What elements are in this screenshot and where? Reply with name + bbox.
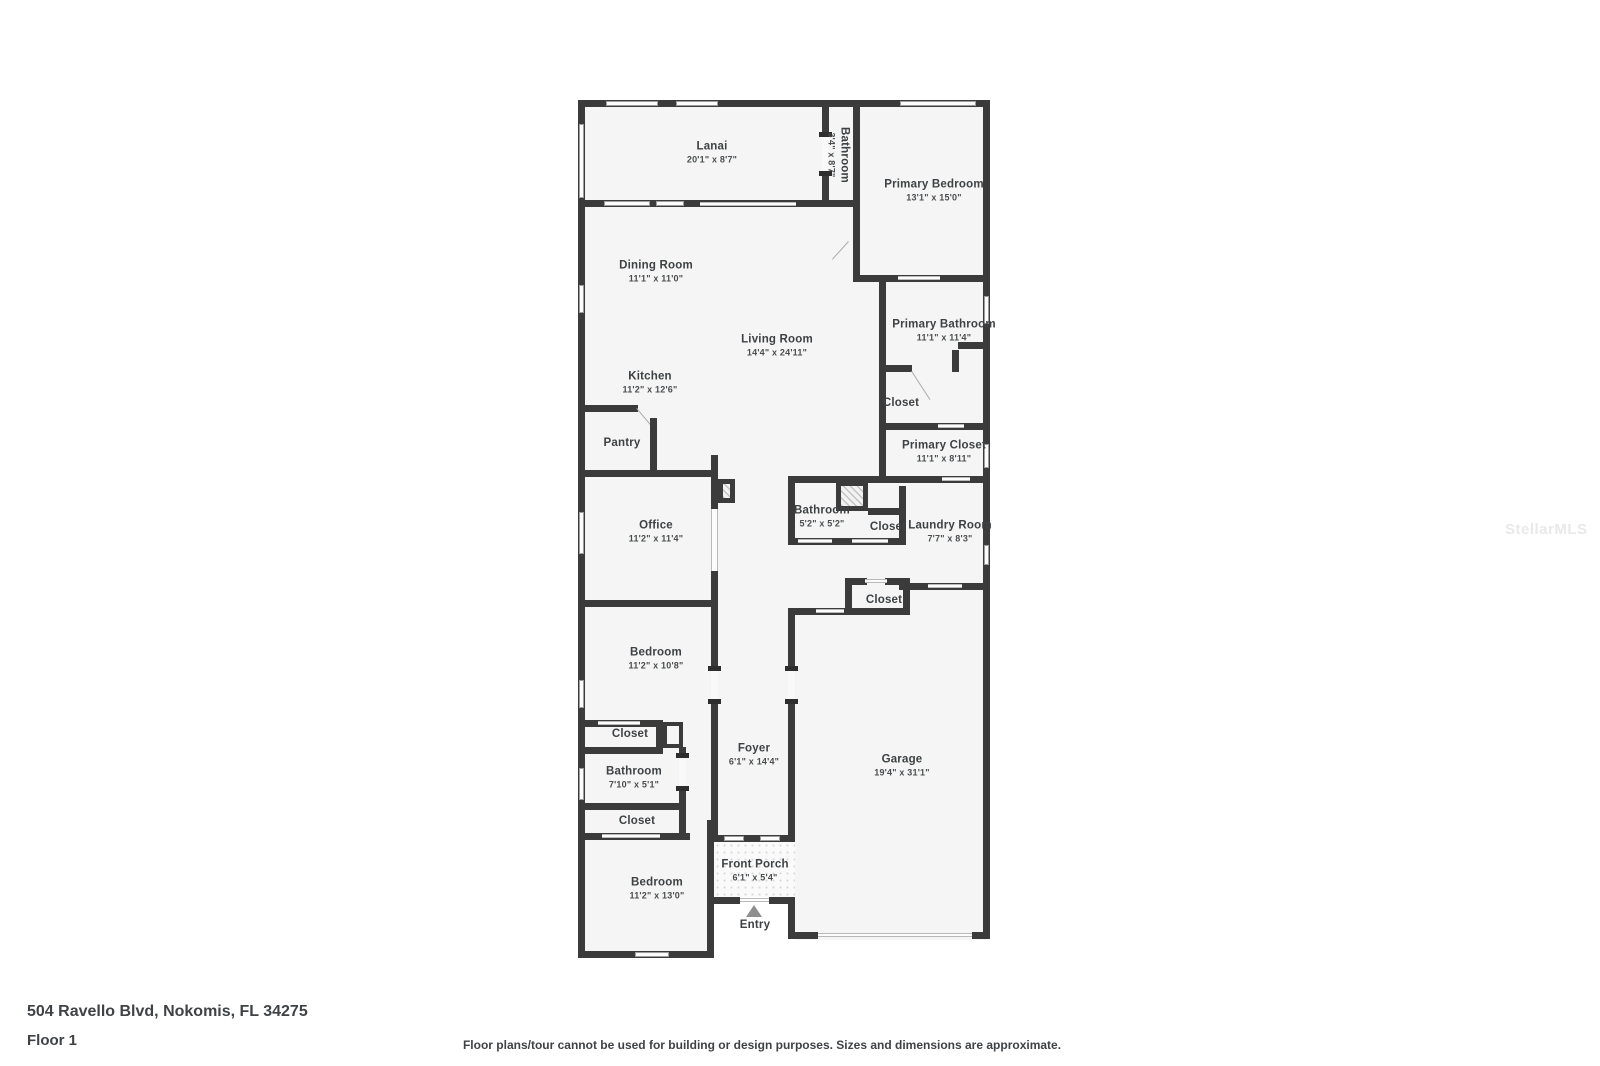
window [604,201,650,206]
room-dims: 7'7" x 8'3" [908,534,992,545]
door-opening [679,758,686,786]
wall [578,803,686,810]
room-label-kitchen: Kitchen11'2" x 12'6" [623,370,678,397]
door-frame [676,786,689,791]
room-dims: 11'1" x 11'4" [892,333,996,344]
door-frame [785,666,798,671]
wall [886,365,912,372]
room-name: Primary Closet [902,439,986,453]
room-label-garage: Garage19'4" x 31'1" [874,753,929,780]
door-opening [788,671,795,699]
wall [972,932,990,939]
room-label-primary-closet: Primary Closet11'1" x 8'11" [902,439,986,466]
door-frame [708,699,721,704]
room-label-lanai: Lanai20'1" x 8'7" [687,140,737,167]
door-opening [898,276,940,280]
window [579,680,584,708]
door-frame [785,699,798,704]
room-label-hall-bathroom: Bathroom5'2" x 5'2" [794,504,850,531]
porch-opening [740,898,769,902]
room-name: Foyer [729,742,779,756]
room-label-foyer: Foyer6'1" x 14'4" [729,742,779,769]
door-opening [928,584,962,588]
room-name: Office [629,519,683,533]
window [606,101,658,106]
wall [578,405,638,412]
door-opening [816,609,844,613]
room-dims: 7'10" x 5'1" [606,780,662,791]
room-name: Laundry Room [908,519,992,533]
window [984,545,989,565]
room-label-bathroom-top: Bathroom3'4" x 8'7" [825,127,852,183]
room-dims: 11'1" x 8'11" [902,454,986,465]
wall [707,820,714,958]
room-label-primary-bathroom: Primary Bathroom11'1" x 11'4" [892,318,996,345]
room-label-laundry-room: Laundry Room7'7" x 8'3" [908,519,992,546]
room-dims: 11'2" x 10'8" [629,661,684,672]
room-label-living-room: Living Room14'4" x 24'11" [741,333,813,360]
room-label-pantry: Pantry [604,436,641,450]
room-label-closet-primary-bath: Closet [883,396,919,410]
wall [845,578,867,585]
door-opening [711,671,718,699]
window [900,101,976,106]
wall [860,476,990,483]
wall [879,423,990,430]
room-name: Primary Bathroom [892,318,996,332]
garage-door [818,933,972,937]
wall [714,897,740,904]
room-dims: 20'1" x 8'7" [687,155,737,166]
room-name: Front Porch [721,858,788,872]
wall [578,470,718,477]
room-label-bedroom-mid: Bedroom11'2" x 10'8" [629,646,684,673]
window [579,512,584,554]
room-name: Garage [874,753,929,767]
window [676,101,718,106]
room-name: Lanai [687,140,737,154]
room-label-primary-bedroom: Primary Bedroom13'1" x 15'0" [884,178,984,205]
room-label-closet-bed-lower: Closet [619,814,655,828]
room-label-front-porch: Front Porch6'1" x 5'4" [721,858,788,885]
window [579,124,584,198]
footer-address: 504 Ravello Blvd, Nokomis, FL 34275 [27,1003,308,1021]
room-name: Closet [866,593,902,607]
wall [663,722,683,748]
door-opening [602,834,660,838]
room-name: Dining Room [619,259,693,273]
room-name: Pantry [604,436,641,450]
room-name: Living Room [741,333,813,347]
footer-floor-label: Floor 1 [27,1032,77,1049]
wall [788,932,818,939]
room-name: Closet [870,520,906,534]
room-label-closet-hall: Closet [870,520,906,534]
room-name: Kitchen [623,370,678,384]
room-name: Closet [612,727,648,741]
wall [879,275,886,480]
wall [853,100,860,282]
room-name: Bathroom [837,127,851,183]
room-label-dining-room: Dining Room11'1" x 11'0" [619,259,693,286]
entry-label: Entry [740,918,770,932]
window [724,836,744,841]
window [635,952,669,957]
room-label-bathroom-lower: Bathroom7'10" x 5'1" [606,765,662,792]
wall [769,897,795,904]
door-opening [798,539,832,543]
room-name: Primary Bedroom [884,178,984,192]
room-dims: 11'2" x 13'0" [630,891,685,902]
room-dims: 19'4" x 31'1" [874,768,929,779]
watermark: StellarMLS [1505,521,1588,538]
window [656,201,684,206]
room-dims: 11'2" x 11'4" [629,534,683,545]
door-opening [852,539,888,543]
room-dims: 6'1" x 5'4" [721,873,788,884]
door-frame [676,753,689,758]
room-name: Entry [740,918,770,932]
wall [868,508,899,515]
room-label-closet-bed-mid: Closet [612,727,648,741]
room-name: Bathroom [794,504,850,518]
room-label-closet-garage: Closet [866,593,902,607]
wall [650,418,657,477]
wall [845,608,910,615]
room-name: Closet [883,396,919,410]
chase-hatch [718,479,735,503]
room-dims: 6'1" x 14'4" [729,757,779,768]
room-dims: 11'2" x 12'6" [623,385,678,396]
wall [899,486,906,545]
room-dims: 13'1" x 15'0" [884,193,984,204]
room-dims: 3'4" x 8'7" [825,127,836,183]
entry-arrow-icon [746,905,762,917]
wall [578,747,663,754]
room-dims: 14'4" x 24'11" [741,348,813,359]
footer-disclaimer: Floor plans/tour cannot be used for buil… [463,1038,1061,1052]
room-name: Closet [619,814,655,828]
door-opening [598,721,640,725]
door-opening [942,477,970,481]
door-opening [865,579,887,583]
wall [885,578,910,585]
door-opening [938,424,964,428]
wall [952,350,959,372]
slider-opening [700,202,796,206]
room-name: Bathroom [606,765,662,779]
window [760,836,780,841]
floor-plan: Lanai20'1" x 8'7" Bathroom3'4" x 8'7" Pr… [0,0,1600,1066]
room-label-office: Office11'2" x 11'4" [629,519,683,546]
room-label-bedroom-lower: Bedroom11'2" x 13'0" [630,876,685,903]
window [579,285,584,313]
wall [578,600,718,607]
room-name: Bedroom [630,876,685,890]
door-frame [708,666,721,671]
cased-opening [711,509,718,571]
room-dims: 5'2" x 5'2" [794,519,850,530]
room-name: Bedroom [629,646,684,660]
room-dims: 11'1" x 11'0" [619,274,693,285]
window [579,768,584,800]
